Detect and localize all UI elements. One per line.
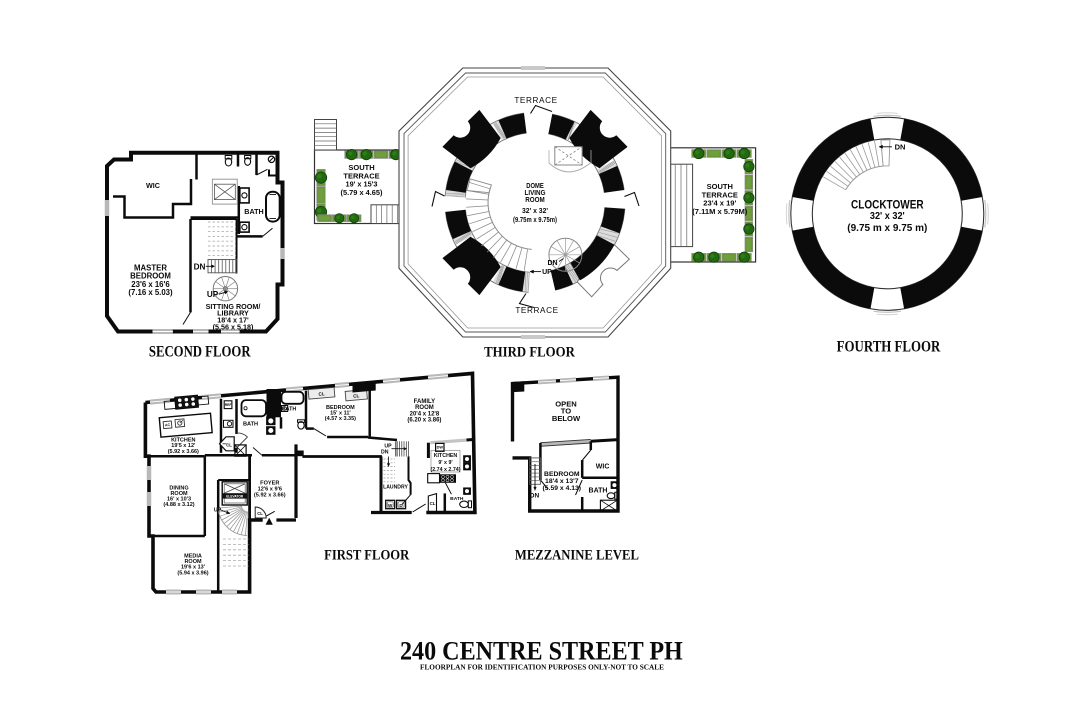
svg-text:BEDROOM: BEDROOM: [544, 471, 580, 478]
svg-text:DN: DN: [381, 449, 389, 455]
svg-text:FOYER: FOYER: [260, 481, 279, 487]
svg-text:REF: REF: [225, 403, 232, 407]
svg-text:CL: CL: [430, 501, 436, 506]
svg-text:SECOND FLOOR: SECOND FLOOR: [149, 343, 251, 360]
svg-text:(5.79 x 4.65): (5.79 x 4.65): [341, 188, 383, 197]
svg-text:AC: AC: [165, 423, 171, 427]
svg-text:BATH: BATH: [282, 407, 297, 413]
svg-text:20'4 x 12'8: 20'4 x 12'8: [410, 411, 440, 417]
svg-text:(2.74 x 2.74): (2.74 x 2.74): [430, 467, 460, 473]
svg-text:DN: DN: [895, 143, 906, 152]
svg-text:(4.88 x 3.12): (4.88 x 3.12): [163, 502, 194, 508]
svg-text:ROOM: ROOM: [525, 195, 545, 204]
svg-text:32' x 32': 32' x 32': [522, 206, 548, 215]
svg-text:CL: CL: [353, 393, 360, 399]
svg-text:FOURTH FLOOR: FOURTH FLOOR: [837, 339, 941, 356]
svg-text:BATH: BATH: [243, 422, 258, 428]
svg-text:CL: CL: [318, 391, 325, 397]
svg-text:12'6 x 9'6: 12'6 x 9'6: [258, 487, 282, 493]
svg-text:(5.92 x 3.66): (5.92 x 3.66): [168, 449, 199, 455]
svg-text:ELEVATOR: ELEVATOR: [226, 494, 244, 498]
svg-text:BATH: BATH: [244, 207, 263, 216]
svg-text:32' x 32': 32' x 32': [870, 210, 905, 222]
svg-text:(5.56 x 5.18): (5.56 x 5.18): [213, 323, 254, 332]
svg-text:TERRACE: TERRACE: [515, 306, 558, 315]
svg-text:9' x 9': 9' x 9': [438, 460, 452, 466]
svg-text:WIC: WIC: [146, 181, 160, 190]
svg-text:BATH: BATH: [589, 488, 608, 495]
svg-text:(4.57 x 3.35): (4.57 x 3.35): [325, 416, 356, 422]
svg-text:DN: DN: [530, 493, 540, 500]
svg-text:FIRST FLOOR: FIRST FLOOR: [324, 547, 410, 563]
svg-text:UP: UP: [207, 290, 219, 299]
svg-text:KITCHEN: KITCHEN: [434, 453, 458, 459]
svg-text:240 CENTRE STREET PH: 240 CENTRE STREET PH: [400, 636, 683, 665]
svg-text:18'4 x 13'7: 18'4 x 13'7: [545, 478, 579, 485]
svg-text:(5.92 x 3.66): (5.92 x 3.66): [254, 493, 286, 499]
svg-text:UP: UP: [214, 508, 222, 514]
svg-text:BELOW: BELOW: [552, 414, 581, 423]
svg-text:TERRACE: TERRACE: [514, 96, 557, 105]
svg-text:(9.75m x 9.75m): (9.75m x 9.75m): [513, 215, 557, 224]
svg-text:LAUNDRY: LAUNDRY: [383, 485, 408, 491]
svg-text:CL: CL: [257, 511, 263, 516]
svg-text:W: W: [388, 503, 393, 508]
svg-text:(7.16 x 5.03): (7.16 x 5.03): [128, 288, 173, 297]
svg-text:THIRD FLOOR: THIRD FLOOR: [484, 345, 575, 361]
svg-text:FAMILY: FAMILY: [414, 399, 435, 405]
svg-text:MEZZANINE LEVEL: MEZZANINE LEVEL: [515, 547, 639, 563]
svg-text:(9.75 m x 9.75 m): (9.75 m x 9.75 m): [847, 222, 927, 234]
svg-text:DW: DW: [437, 446, 444, 450]
svg-text:DN: DN: [194, 263, 206, 272]
svg-text:(7.11M x 5.79M): (7.11M x 5.79M): [692, 207, 748, 216]
svg-text:(5.59 x 4.13): (5.59 x 4.13): [543, 485, 582, 492]
svg-text:DN: DN: [547, 260, 557, 267]
svg-text:(6.20 x 3.86): (6.20 x 3.86): [407, 418, 441, 424]
svg-text:(5.94 x 3.96): (5.94 x 3.96): [177, 570, 208, 576]
svg-text:CL: CL: [226, 442, 232, 447]
svg-text:FLOORPLAN FOR IDENTIFICATION P: FLOORPLAN FOR IDENTIFICATION PURPOSES ON…: [420, 663, 664, 672]
svg-text:WIC: WIC: [596, 464, 610, 471]
svg-text:ROOM: ROOM: [415, 405, 434, 411]
svg-text:UP: UP: [542, 269, 552, 276]
